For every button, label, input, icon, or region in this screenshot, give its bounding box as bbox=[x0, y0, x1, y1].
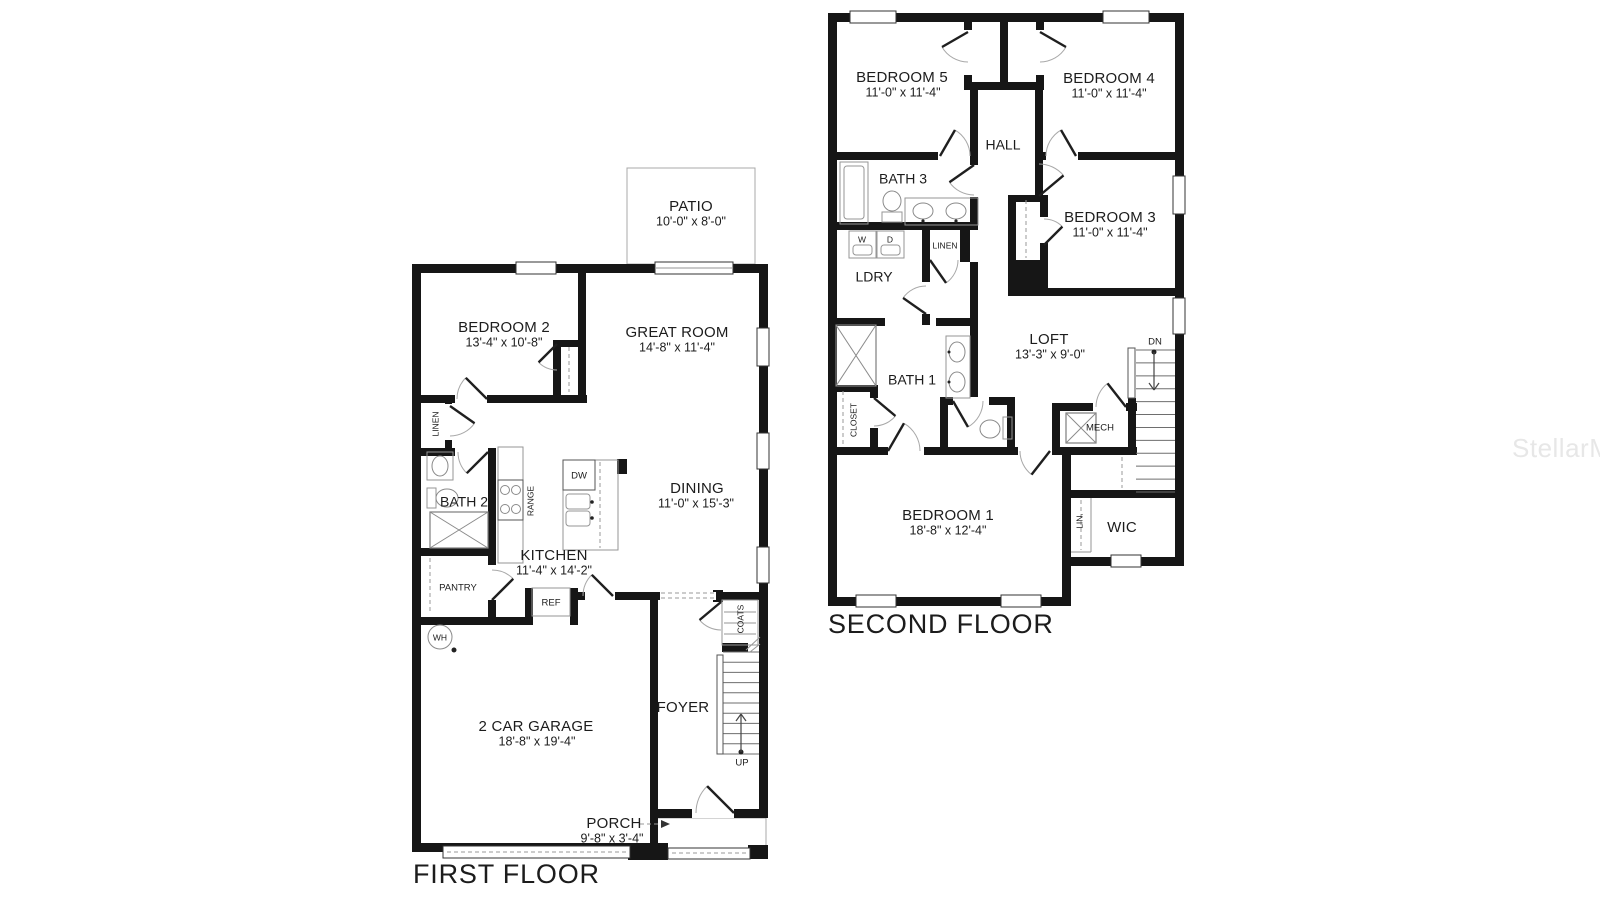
wall-segment bbox=[964, 82, 1044, 90]
wall-opening bbox=[922, 282, 930, 314]
wall-segment bbox=[412, 264, 421, 852]
door bbox=[930, 260, 958, 283]
wall-segment bbox=[628, 843, 668, 860]
fixture-ellipse bbox=[432, 456, 448, 476]
direction-arrow bbox=[1149, 350, 1159, 391]
room-dims-garage: 18'-8" x 19'-4" bbox=[499, 734, 576, 748]
room-label-wic: WIC bbox=[1107, 519, 1137, 536]
wall-opening bbox=[964, 30, 972, 75]
arrow-head bbox=[736, 714, 741, 721]
window bbox=[1173, 176, 1185, 214]
appliance-label-refrigerator: REF bbox=[542, 598, 561, 609]
door-panel bbox=[1044, 227, 1062, 245]
watermark-stellar-mls: StellarMLS bbox=[1512, 433, 1600, 463]
wall-segment bbox=[412, 548, 496, 556]
wall-segment bbox=[1040, 195, 1048, 217]
wall-segment bbox=[1128, 398, 1136, 455]
wall-opening bbox=[870, 398, 878, 428]
wall-segment bbox=[553, 340, 586, 347]
door-panel bbox=[930, 260, 946, 283]
room-label-bedroom-1: BEDROOM 1 bbox=[902, 507, 994, 524]
door bbox=[700, 602, 721, 630]
door-swing-arc bbox=[1044, 219, 1062, 227]
room-label-bedroom-5: BEDROOM 5 bbox=[856, 69, 948, 86]
window bbox=[1103, 11, 1149, 23]
wall-segment bbox=[570, 588, 578, 625]
stairs-label-up: UP bbox=[735, 758, 748, 769]
room-dims-bedroom-5: 11'-0" x 11'-4" bbox=[865, 85, 940, 99]
wall-opening bbox=[970, 165, 978, 197]
marker-dot bbox=[590, 500, 594, 504]
room-dims-bedroom-1: 18'-8" x 12'-4" bbox=[910, 523, 987, 537]
window bbox=[516, 262, 556, 274]
room-label-laundry: LDRY bbox=[855, 269, 893, 285]
door bbox=[696, 786, 734, 813]
wall-segment bbox=[1052, 447, 1137, 455]
wall-segment bbox=[1062, 490, 1184, 498]
door-panel bbox=[707, 786, 734, 813]
wall-segment bbox=[1062, 447, 1071, 606]
room-label-porch: PORCH bbox=[586, 815, 641, 832]
appliance-label-range: RANGE bbox=[525, 486, 535, 517]
room-label-bath-3: BATH 3 bbox=[879, 171, 927, 187]
wall-segment bbox=[1035, 90, 1043, 197]
room-label-bedroom-2: BEDROOM 2 bbox=[458, 319, 550, 336]
room-label-dining: DINING bbox=[670, 480, 724, 497]
door-panel bbox=[700, 602, 721, 620]
door-swing-arc bbox=[700, 620, 721, 630]
wall-segment bbox=[578, 273, 586, 400]
room-label-loft: LOFT bbox=[1029, 331, 1068, 348]
floor-title-second: SECOND FLOOR bbox=[828, 609, 1054, 639]
room-label-foyer: FOYER bbox=[657, 699, 710, 716]
closet-label-pantry: PANTRY bbox=[439, 583, 477, 594]
window bbox=[757, 328, 769, 366]
marker-dot bbox=[954, 219, 957, 222]
floor-plan-image: PATIO 10'-0" x 8'-0" BEDROOM 2 13'-4" x … bbox=[0, 0, 1600, 900]
door-swing-arc bbox=[904, 423, 920, 451]
door-swing-arc bbox=[696, 786, 707, 813]
wall-segment bbox=[960, 226, 970, 262]
fixture-outline bbox=[427, 488, 436, 508]
fixture-outline bbox=[498, 480, 523, 520]
wall-segment bbox=[828, 222, 974, 230]
fixture-ellipse bbox=[883, 191, 901, 211]
closet-label-coats: COATS bbox=[735, 604, 745, 633]
room-label-patio: PATIO bbox=[669, 198, 713, 215]
stairs-label-dn: DN bbox=[1148, 337, 1162, 348]
wall-opening bbox=[692, 809, 734, 818]
wall-segment bbox=[412, 617, 533, 625]
arrowhead bbox=[661, 820, 670, 828]
fixture-ellipse bbox=[946, 203, 966, 219]
wall-segment bbox=[970, 262, 978, 403]
door-swing-arc bbox=[946, 260, 958, 283]
window bbox=[757, 433, 769, 469]
room-dims-patio: 10'-0" x 8'-0" bbox=[656, 214, 726, 228]
window bbox=[757, 547, 769, 583]
wall-opening bbox=[455, 448, 488, 456]
room-label-bedroom-3: BEDROOM 3 bbox=[1064, 209, 1156, 226]
arrow-head bbox=[741, 714, 746, 721]
floor-title-first: FIRST FLOOR bbox=[413, 859, 600, 889]
wall-segment bbox=[748, 845, 768, 859]
room-dims-dining: 11'-0" x 15'-3" bbox=[658, 496, 734, 510]
fixture-ellipse bbox=[949, 342, 965, 362]
appliance-label-dryer: D bbox=[887, 234, 893, 244]
wall-opening bbox=[1093, 403, 1126, 411]
closet-label-linen-first: LINEN bbox=[430, 411, 440, 436]
door bbox=[450, 406, 475, 436]
crossed-box bbox=[836, 325, 876, 386]
room-dims-bedroom-4: 11'-0" x 11'-4" bbox=[1071, 86, 1146, 100]
window bbox=[1001, 595, 1041, 607]
room-label-kitchen: KITCHEN bbox=[520, 547, 587, 564]
room-dims-kitchen: 11'-4" x 14'-2" bbox=[516, 563, 592, 577]
marker-dot bbox=[948, 351, 951, 354]
wall-segment bbox=[488, 448, 496, 560]
marker-dot bbox=[590, 516, 594, 520]
first-floor-geometry bbox=[412, 168, 769, 860]
marker-dot bbox=[948, 381, 951, 384]
closet-label-mech: MECH bbox=[1086, 423, 1114, 434]
crossed-box bbox=[430, 512, 488, 548]
room-label-bath-2: BATH 2 bbox=[440, 494, 488, 510]
appliance-label-dishwasher: DW bbox=[571, 471, 587, 482]
closet-label-lin: LIN. bbox=[1074, 513, 1084, 529]
fixture-inner bbox=[566, 511, 590, 526]
window bbox=[1111, 555, 1141, 567]
appliance-label-washer: W bbox=[858, 234, 866, 244]
fixture-inner bbox=[844, 166, 864, 219]
fixture-ellipse bbox=[949, 372, 965, 392]
door-panel bbox=[888, 423, 904, 451]
wall-segment bbox=[553, 340, 561, 403]
room-label-hall: HALL bbox=[985, 137, 1020, 153]
fixture-outline bbox=[717, 655, 723, 754]
staircase bbox=[1136, 350, 1175, 492]
wall-opening bbox=[455, 395, 487, 403]
room-dims-bedroom-2: 13'-4" x 10'-8" bbox=[466, 335, 543, 349]
wall-segment bbox=[650, 592, 658, 852]
wall-segment bbox=[936, 318, 972, 326]
fixture-inner bbox=[566, 494, 590, 509]
fixture-ellipse bbox=[980, 420, 1000, 438]
wall-segment bbox=[1000, 22, 1008, 90]
wall-segment bbox=[1008, 288, 1183, 296]
room-label-garage: 2 CAR GARAGE bbox=[479, 718, 594, 735]
wall-segment bbox=[722, 643, 748, 652]
window bbox=[850, 11, 896, 23]
wall-segment bbox=[828, 13, 837, 606]
door-swing-arc bbox=[450, 423, 475, 436]
marker-dot bbox=[452, 648, 457, 653]
room-dims-porch: 9'-8" x 3'-4" bbox=[581, 831, 644, 845]
window bbox=[1173, 298, 1185, 334]
wall-opening bbox=[445, 404, 452, 440]
fixture-inner bbox=[853, 245, 872, 255]
room-label-bedroom-4: BEDROOM 4 bbox=[1063, 70, 1155, 87]
wall-segment bbox=[1007, 397, 1015, 455]
marker-dot bbox=[921, 219, 924, 222]
room-label-bath-1: BATH 1 bbox=[888, 372, 936, 388]
floor-plan-svg: PATIO 10'-0" x 8'-0" BEDROOM 2 13'-4" x … bbox=[0, 0, 1600, 900]
room-dims-bedroom-3: 11'-0" x 11'-4" bbox=[1072, 225, 1147, 239]
window bbox=[856, 595, 896, 607]
door bbox=[1044, 219, 1062, 245]
direction-arrow bbox=[736, 714, 746, 755]
fixture-outline bbox=[1128, 348, 1135, 398]
room-dims-great-room: 14'-8" x 11'-4" bbox=[639, 340, 715, 354]
wall-opening bbox=[888, 447, 924, 455]
wall-opening bbox=[1036, 30, 1044, 75]
fixture-outline bbox=[882, 212, 902, 222]
door bbox=[888, 423, 920, 451]
room-dims-loft: 13'-3" x 9'-0" bbox=[1015, 347, 1085, 361]
room-label-great-room: GREAT ROOM bbox=[625, 324, 728, 341]
closet-label-closet: CLOSET bbox=[848, 403, 858, 437]
closet-label-linen-second: LINEN bbox=[932, 240, 957, 250]
fixture-inner bbox=[881, 245, 900, 255]
second-floor-geometry bbox=[828, 11, 1185, 607]
door-panel bbox=[450, 406, 475, 423]
appliance-label-water-heater: WH bbox=[433, 632, 447, 642]
fixture-ellipse bbox=[913, 203, 933, 219]
